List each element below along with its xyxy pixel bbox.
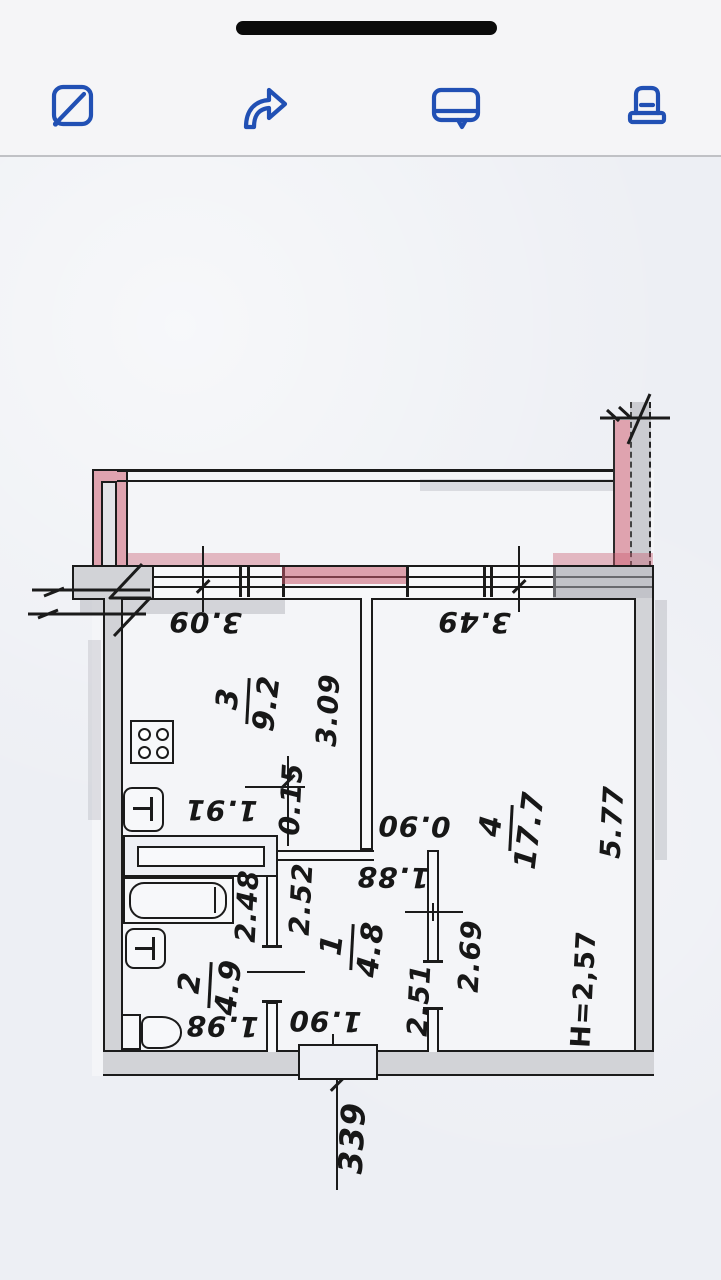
wall-break-symbol-left xyxy=(24,558,164,642)
toilet-bowl-icon xyxy=(141,1016,182,1049)
room4-dim-label: 5.77 xyxy=(594,785,631,860)
room3-dim-label: 0.15 xyxy=(273,762,310,837)
window-dim-label: 3.09 xyxy=(168,605,242,639)
room4-label: 4 17.7 xyxy=(472,785,550,871)
room1-dim-label: 2.51 xyxy=(401,963,438,1038)
wall-bottom xyxy=(103,1050,654,1076)
bath-sink-icon xyxy=(125,928,166,969)
stamp-icon xyxy=(619,80,675,136)
entry-door-threshold xyxy=(298,1044,378,1080)
stamp-button[interactable] xyxy=(618,79,676,137)
pencil-shade xyxy=(655,600,667,860)
room4-dim-line xyxy=(405,911,463,913)
wall-break-symbol-right xyxy=(595,390,677,448)
door-width-label: 0.90 xyxy=(377,809,451,843)
window-dim-label: 3.49 xyxy=(437,605,511,639)
balcony-rail xyxy=(117,469,617,482)
wall-chunk-middle-pink xyxy=(282,567,406,584)
markup-button[interactable] xyxy=(43,79,101,137)
viewer-toolbar xyxy=(0,0,721,157)
ceiling-height-label: H=2,57 xyxy=(565,929,602,1048)
room4-dim-label: 2.69 xyxy=(452,919,489,994)
wall-left xyxy=(103,598,123,1076)
closet-inner xyxy=(137,846,265,867)
bathtub-icon xyxy=(129,882,227,919)
room1-label: 1 4.8 xyxy=(314,915,389,979)
door-jamb xyxy=(262,1000,282,1003)
room1-dim-label: 1.88 xyxy=(356,860,430,894)
room4-dim-line xyxy=(432,903,434,921)
comment-icon xyxy=(428,80,484,136)
kitchen-sink-icon xyxy=(123,787,164,832)
room3-label: 3 9.2 xyxy=(210,669,285,733)
hall-dim-line xyxy=(247,971,305,973)
toolbar-divider xyxy=(0,155,721,157)
markup-icon xyxy=(44,80,100,136)
wall-bath-right-upper xyxy=(266,875,278,947)
pencil-shade xyxy=(88,640,101,820)
comment-button[interactable] xyxy=(427,79,485,137)
room1-dim-label: 2.52 xyxy=(283,862,320,937)
entry-number-label: 339 xyxy=(331,1101,374,1175)
pink-strip xyxy=(553,553,653,565)
floorplan-image[interactable]: 3.09 3.49 3 9.2 3.09 0.15 1.91 2 4.9 2.4… xyxy=(0,0,721,1280)
door-jamb xyxy=(423,960,443,963)
room3-dim-label: 3.09 xyxy=(310,673,347,748)
room2-dim-label: 1.98 xyxy=(185,1009,259,1043)
wall-right xyxy=(634,598,654,1076)
wall-chunk-right-gray xyxy=(553,567,652,598)
wall-bath-right-lower xyxy=(266,1002,278,1052)
stove-icon xyxy=(130,720,174,764)
room3-dim-label: 1.91 xyxy=(184,793,258,827)
room2-dim-label: 2.48 xyxy=(229,869,266,944)
forward-icon xyxy=(233,80,289,136)
door-jamb xyxy=(262,945,282,948)
wall-kitchen-room4 xyxy=(360,598,373,850)
top-handle-bar xyxy=(236,21,497,35)
window-dim-line xyxy=(518,546,520,612)
room2-label: 2 4.9 xyxy=(172,953,247,1017)
room1-dim-label: 1.90 xyxy=(288,1004,362,1038)
forward-button[interactable] xyxy=(232,79,290,137)
toilet-tank xyxy=(121,1014,141,1050)
window-dim-line xyxy=(202,546,204,612)
